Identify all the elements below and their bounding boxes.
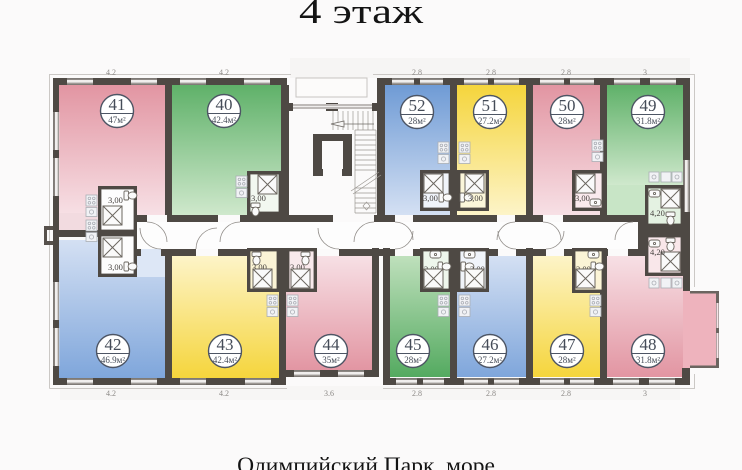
svg-text:45: 45 [405,335,422,354]
svg-text:3: 3 [643,389,647,398]
svg-text:27.2м²: 27.2м² [478,116,502,126]
svg-text:4.2: 4.2 [106,389,116,398]
svg-text:2.8: 2.8 [412,389,422,398]
svg-text:3,00: 3,00 [108,262,123,272]
svg-text:42: 42 [105,335,122,354]
svg-text:43: 43 [217,335,234,354]
svg-text:4,20: 4,20 [650,208,665,218]
svg-text:Олимпийский Парк, море: Олимпийский Парк, море [237,453,495,470]
svg-text:52: 52 [409,96,426,115]
svg-text:27.2м²: 27.2м² [478,355,502,365]
svg-text:2.8: 2.8 [412,68,422,77]
svg-text:4,20: 4,20 [650,247,665,257]
svg-text:3: 3 [643,68,647,77]
svg-text:35м²: 35м² [322,355,340,365]
svg-text:46.9м²: 46.9м² [101,355,125,365]
svg-text:42.4м²: 42.4м² [213,355,237,365]
svg-text:4.2: 4.2 [106,68,116,77]
svg-text:4.2: 4.2 [219,68,229,77]
svg-text:3,00: 3,00 [423,193,438,203]
svg-text:3,00: 3,00 [575,193,590,203]
svg-text:3.6: 3.6 [324,389,334,398]
svg-text:42.4м²: 42.4м² [212,115,236,125]
svg-text:49: 49 [640,96,657,115]
svg-text:3,00: 3,00 [108,195,123,205]
svg-text:41: 41 [109,95,126,114]
svg-text:50: 50 [559,96,576,115]
svg-text:28м²: 28м² [558,116,576,126]
svg-text:28м²: 28м² [404,355,422,365]
svg-text:4.2: 4.2 [219,389,229,398]
svg-text:46: 46 [482,335,499,354]
svg-text:31.8м²: 31.8м² [636,116,660,126]
svg-text:47м²: 47м² [108,115,126,125]
svg-text:2.8: 2.8 [561,68,571,77]
svg-text:28м²: 28м² [408,116,426,126]
svg-text:2.8: 2.8 [486,389,496,398]
svg-text:48: 48 [640,335,657,354]
svg-text:31.8м²: 31.8м² [636,355,660,365]
svg-text:51: 51 [482,96,499,115]
svg-text:47: 47 [559,335,577,354]
svg-text:40: 40 [216,95,233,114]
svg-text:2.8: 2.8 [486,68,496,77]
svg-text:28м²: 28м² [558,355,576,365]
svg-text:3,00: 3,00 [468,193,483,203]
svg-text:2.8: 2.8 [561,389,571,398]
svg-text:4 этаж: 4 этаж [299,0,423,31]
svg-text:44: 44 [323,335,341,354]
